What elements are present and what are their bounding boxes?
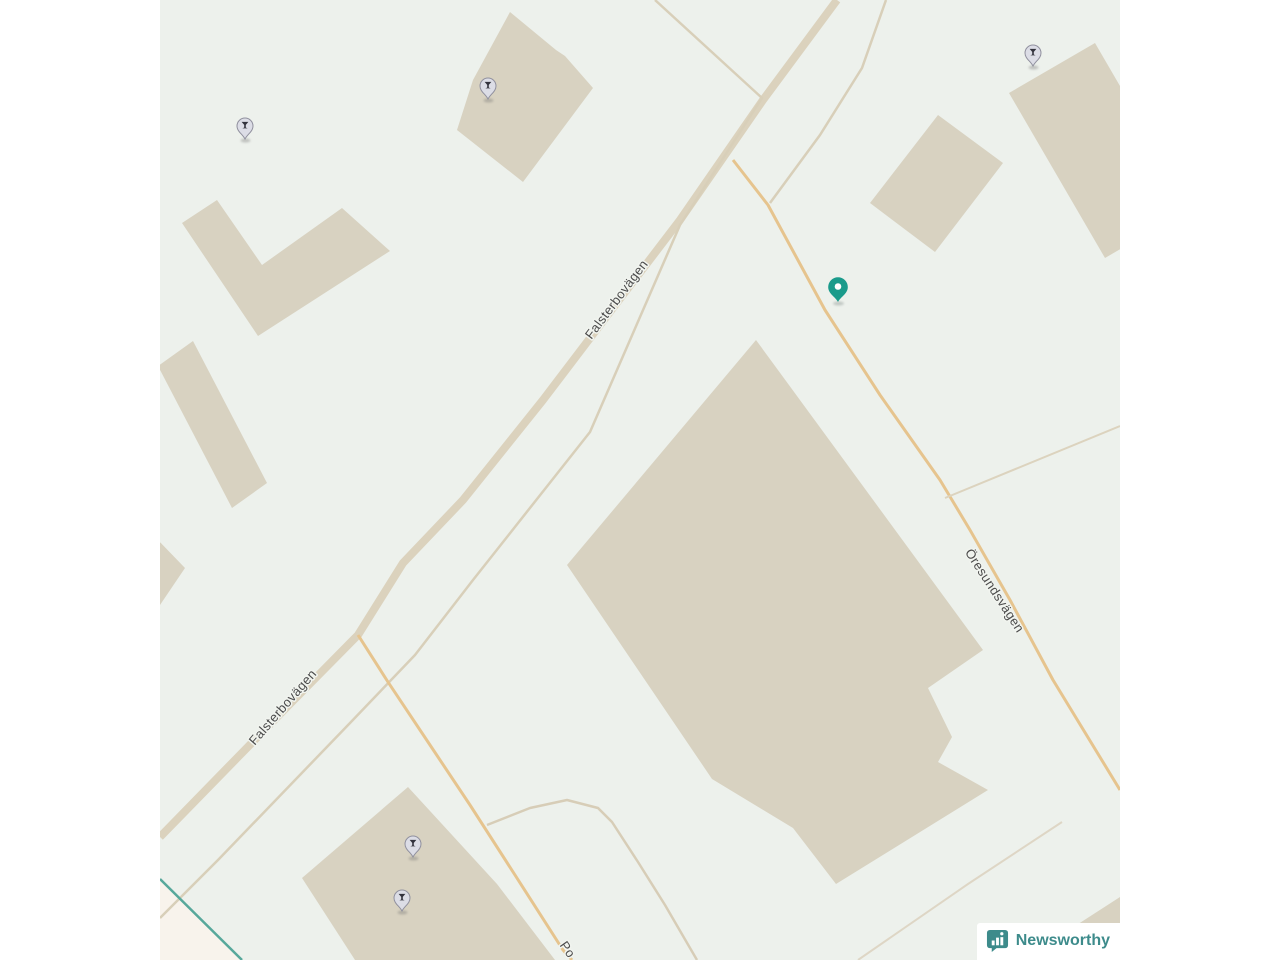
road-east-stub (945, 426, 1120, 498)
poi-pin-shape (237, 118, 253, 139)
pin-shadow (833, 302, 844, 306)
building-sliver-west-edge (160, 540, 185, 608)
newsworthy-logo-icon (986, 929, 1009, 952)
location-pin-layer (828, 277, 848, 305)
street-name-label: Falsterbovägen (582, 257, 651, 342)
map-svg: FalsterbovägenFalsterbovägenÖresundsväge… (160, 0, 1120, 960)
location-pin-marker[interactable] (828, 277, 848, 305)
building-square-northeast (870, 115, 1003, 252)
road-northeast-feeder (770, 0, 886, 203)
location-pin-hole (835, 283, 842, 290)
building-large-central (567, 340, 988, 884)
building-l-shape-northwest (182, 200, 390, 336)
street-name-label: Falsterbovägen (246, 666, 320, 748)
bar-poi-marker[interactable] (1025, 45, 1041, 70)
newsworthy-brand-text: Newsworthy (1016, 932, 1110, 950)
building-tall-east-edge (1009, 43, 1120, 258)
bar-poi-marker[interactable] (237, 118, 253, 143)
building-thin-west (160, 341, 267, 508)
street-name-label: Öresundsvägen (962, 546, 1027, 636)
street-name-label: Po (557, 938, 579, 960)
newsworthy-attribution[interactable]: Newsworthy (977, 923, 1120, 960)
poi-pin-shape (1025, 45, 1041, 66)
building-top-center (457, 12, 593, 182)
map-canvas[interactable]: FalsterbovägenFalsterbovägenÖresundsväge… (160, 0, 1120, 960)
